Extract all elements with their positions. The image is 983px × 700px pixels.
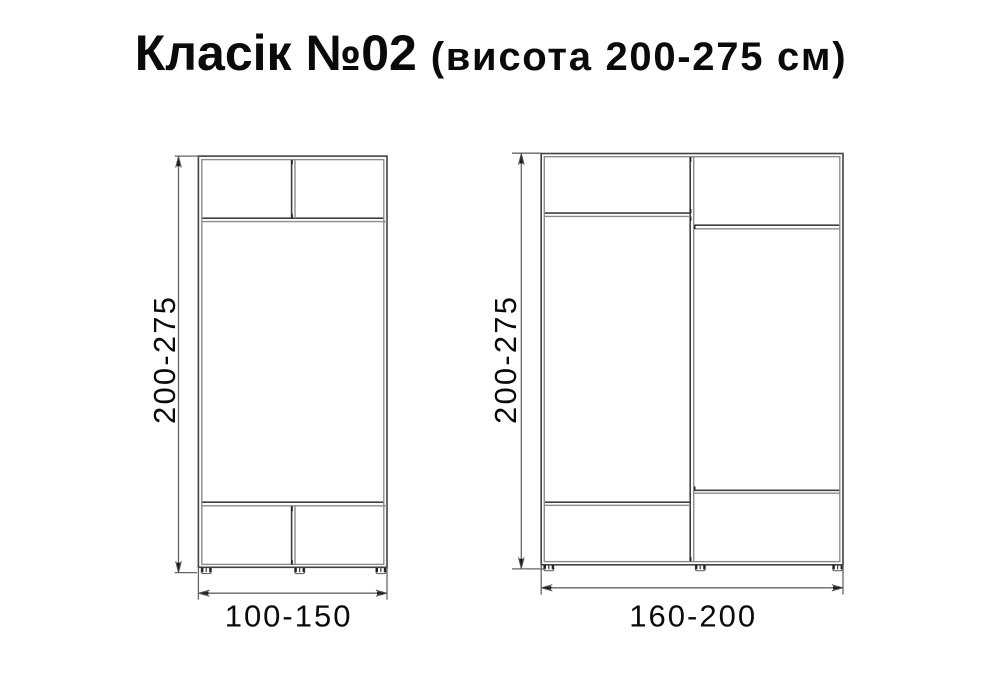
svg-text:200-275: 200-275 — [488, 295, 523, 424]
svg-text:160-200: 160-200 — [629, 599, 757, 634]
svg-text:200-275: 200-275 — [147, 295, 182, 424]
svg-text:100-150: 100-150 — [225, 599, 353, 634]
